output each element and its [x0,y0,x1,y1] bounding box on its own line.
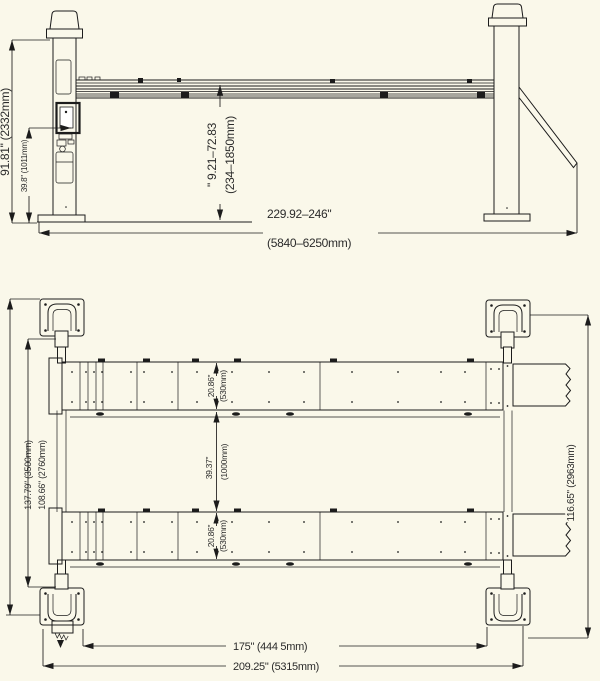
dim-label-runway-width-top-in: 20.86" [206,374,216,397]
dim-label-overall-length-plan: 209.25" (5315mm) [233,661,319,673]
dim-label-overall-length-in: 229.92–246" [267,207,331,221]
dim-label-lift-range-in: " 9.21–72.83 [205,122,219,187]
dim-label-lift-range-mm: (234–1850mm) [223,116,237,194]
post-base-plate [38,215,85,222]
lift-dimensional-diagram: 91.81" (2332mm) 39.8" (1011mm) " 9.21–72… [0,0,600,681]
post-base-plate [484,214,530,221]
dim-label-inner-width: 108.66" (2760mm) [37,440,47,510]
dim-label-runway-width-bottom-mm: (530mm) [218,520,228,552]
dim-label-track-gap-in: 39.37" [204,456,214,479]
dim-label-overall-length-mm: (5840–6250mm) [267,236,351,250]
dim-label-drive-thru-length: 175" (444 5mm) [233,641,307,653]
dim-label-track-gap-mm: (1000mm) [219,443,229,480]
dim-label-runway-width-top-mm: (530mm) [218,370,228,402]
dim-label-side-length: 116.65" (2963mm) [566,445,577,522]
dim-label-overall-height: 91.81" (2332mm) [0,88,12,176]
drawing-sheet: 91.81" (2332mm) 39.8" (1011mm) " 9.21–72… [0,0,600,681]
post-cap [492,4,523,18]
dim-label-base-height: 39.8" (1011mm) [20,139,29,192]
dim-label-runway-width-bottom-in: 20.86" [206,524,216,547]
post-cap [50,11,79,29]
